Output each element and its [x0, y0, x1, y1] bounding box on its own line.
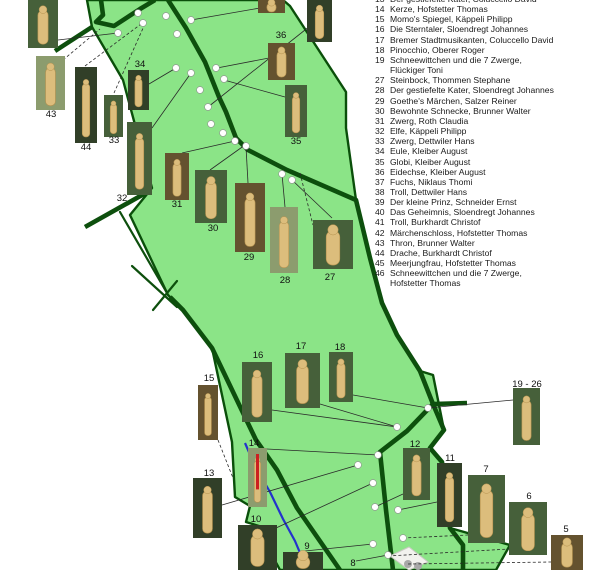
legend-entry-text: Meerjungfrau, Hofstetter Thomas	[390, 258, 554, 268]
legend-entry-number: 37	[375, 177, 390, 187]
photo-28-sculpture	[279, 222, 289, 268]
sculpture-location-dot	[370, 480, 377, 487]
photo-29-sculpture-head	[246, 193, 254, 201]
map-number-label: 33	[109, 135, 120, 146]
legend-entry-number: 17	[375, 35, 390, 45]
photo-33-sculpture	[110, 104, 116, 133]
legend-entry: 34Eule, Kleiber August	[375, 146, 554, 156]
photo-10-sculpture-head	[252, 529, 262, 539]
photo-34-sculpture-head	[136, 75, 141, 80]
legend-entry: 30Bewohnte Schnecke, Brunner Walter	[375, 106, 554, 116]
sculpture-location-dot	[375, 452, 382, 459]
legend-entry: 16Die Sterntaler, Sloendregt Johannes	[375, 24, 554, 34]
sculpture-location-dot	[174, 31, 181, 38]
legend-entry-text: Schneewittchen und die 7 Zwerge,	[390, 268, 554, 278]
sculpture-location-dot	[400, 535, 407, 542]
legend-entry: 39Der kleine Prinz, Schneider Ernst	[375, 197, 554, 207]
legend-entry-text: Bewohnte Schnecke, Brunner Walter	[390, 106, 554, 116]
legend-entry-text: Hofstetter Thomas	[390, 278, 554, 288]
photo-10-sculpture	[251, 535, 264, 567]
sculpture-location-dot	[394, 424, 401, 431]
map-number-label: 34	[135, 59, 146, 70]
map-number-label: 32	[117, 193, 128, 204]
photo-top-left-sculpture-head	[39, 6, 47, 14]
sculpture-location-dot	[197, 87, 204, 94]
photo-32-sculpture-head	[136, 133, 143, 140]
legend-entry: 32Elfe, Käppeli Philipp	[375, 126, 554, 136]
trail-path	[433, 403, 467, 404]
legend-entry-text: Die Sterntaler, Sloendregt Johannes	[390, 24, 554, 34]
map-number-label: 31	[172, 199, 183, 210]
legend-entry-text: Momo's Spiegel, Käppeli Philipp	[390, 14, 554, 24]
legend-entry-number: 44	[375, 248, 390, 258]
photo-35-sculpture-head	[293, 93, 299, 99]
legend-entry-number: 16	[375, 24, 390, 34]
legend-entry: Flückiger Toni	[375, 65, 554, 75]
photo-top-right-sculpture-head	[316, 5, 323, 12]
legend-entry-text: Das Geheimnis, Sloendregt Johannes	[390, 207, 554, 217]
sculpture-location-dot	[289, 177, 296, 184]
photo-29-sculpture	[245, 198, 255, 246]
photo-12-sculpture-head	[413, 455, 420, 462]
legend-entry-text: Der kleine Prinz, Schneider Ernst	[390, 197, 554, 207]
legend-entry-text: Fuchs, Niklaus Thomi	[390, 177, 554, 187]
sculpture-location-dot	[135, 10, 142, 17]
legend-entry: 45Meerjungfrau, Hofstetter Thomas	[375, 258, 554, 268]
legend-entry-text: Elfe, Käppeli Philipp	[390, 126, 554, 136]
photo-32-sculpture	[135, 138, 144, 189]
photo-27-sculpture	[326, 231, 340, 265]
photo-36-sculpture-head	[278, 47, 285, 54]
map-number-label: 18	[335, 342, 346, 353]
photo-17-sculpture	[297, 365, 309, 404]
map-number-label: 30	[208, 223, 219, 234]
map-number-label: 9	[304, 541, 309, 552]
photo-11-sculpture-head	[446, 473, 453, 480]
photo-36-sculpture	[277, 51, 286, 77]
legend-entry-number: 28	[375, 85, 390, 95]
photo-30-sculpture	[206, 182, 217, 219]
sculpture-location-dot	[213, 65, 220, 72]
map-number-label: 15	[204, 373, 215, 384]
sculpture-location-dot	[243, 143, 250, 150]
legend-entry-text: Eidechse, Kleiber August	[390, 167, 554, 177]
legend-entry: 31Zwerg, Roth Claudia	[375, 116, 554, 126]
legend-entry: 42Märchenschloss, Hofstetter Thomas	[375, 228, 554, 238]
legend-entry: 28Der gestiefelte Kater, Sloendregt Joha…	[375, 85, 554, 95]
legend-entry-number: 34	[375, 146, 390, 156]
legend-entry: 18Pinocchio, Oberer Roger	[375, 45, 554, 55]
sculpture-location-dot	[220, 130, 227, 137]
legend-entry: 27Steinbock, Thommen Stephane	[375, 75, 554, 85]
legend-entry-text: Pinocchio, Oberer Roger	[390, 45, 554, 55]
legend-entry-number: 43	[375, 238, 390, 248]
map-number-label: 16	[253, 350, 264, 361]
legend-entry-number: 35	[375, 157, 390, 167]
legend-entry-number: 38	[375, 187, 390, 197]
photo-13-sculpture-head	[204, 486, 212, 494]
photo-6-sculpture-head	[523, 508, 533, 518]
sculpture-location-dot	[205, 104, 212, 111]
sculpture-location-dot	[140, 20, 147, 27]
sculpture-location-dot	[208, 121, 215, 128]
photo-14-red-stripe	[256, 454, 259, 489]
legend-entry: 36Eidechse, Kleiber August	[375, 167, 554, 177]
sculpture-location-dot	[221, 76, 228, 83]
photo-15-sculpture	[205, 397, 212, 436]
legend-entry-text: Märchenschloss, Hofstetter Thomas	[390, 228, 554, 238]
sculpture-location-dot	[115, 30, 122, 37]
legend-entry-text: Kerze, Hofstetter Thomas	[390, 4, 554, 14]
photo-19-26-sculpture-head	[523, 396, 530, 403]
sculpture-location-dot	[163, 13, 170, 20]
photo-43-sculpture-head	[47, 63, 55, 71]
legend-entry-number: 30	[375, 106, 390, 116]
legend-entry-number	[375, 278, 390, 288]
legend-entry-number: 39	[375, 197, 390, 207]
photo-19-26-sculpture	[522, 401, 531, 441]
legend-entry-number: 27	[375, 75, 390, 85]
legend-entry-number: 42	[375, 228, 390, 238]
legend-entry-text: Zwerg, Roth Claudia	[390, 116, 554, 126]
sculpture-location-dot	[188, 70, 195, 77]
legend-entry-number: 15	[375, 14, 390, 24]
photo-18-sculpture	[337, 363, 345, 398]
legend-entry-number: 18	[375, 45, 390, 55]
map-number-label: 35	[291, 136, 302, 147]
sculpture-location-dot	[425, 405, 432, 412]
photo-27-sculpture-head	[328, 225, 338, 235]
map-number-label: 13	[204, 468, 215, 479]
map-number-label: 14	[249, 438, 260, 449]
photo-30-sculpture-head	[207, 176, 215, 184]
photo-5-sculpture-head	[563, 538, 571, 546]
photo-33-sculpture-head	[111, 101, 116, 106]
photo-15-sculpture-head	[205, 393, 210, 398]
sculpture-location-dot	[372, 504, 379, 511]
legend-entry-text: Flückiger Toni	[390, 65, 554, 75]
photo-44-sculpture	[82, 84, 89, 137]
map-number-label: 11	[445, 453, 455, 464]
legend-entry-text: Bremer Stadtmusikanten, Coluccello David	[390, 35, 554, 45]
legend-entry-text: Goethe's Märchen, Salzer Reiner	[390, 96, 554, 106]
legend-entry-text: Schneewittchen und die 7 Zwerge,	[390, 55, 554, 65]
legend-entry: 46Schneewittchen und die 7 Zwerge,	[375, 268, 554, 278]
photo-top-left-sculpture	[38, 11, 48, 45]
legend-entry: 19Schneewittchen und die 7 Zwerge,	[375, 55, 554, 65]
photo-11-sculpture	[445, 477, 454, 522]
map-number-label: 44	[81, 142, 92, 153]
legend-entry-text: Troll, Dettwiler Hans	[390, 187, 554, 197]
map-number-label: 19 - 26	[512, 379, 542, 390]
legend-entry-number: 31	[375, 116, 390, 126]
legend-entry-number: 14	[375, 4, 390, 14]
legend-entry-text: Eule, Kleiber August	[390, 146, 554, 156]
legend-entry: Hofstetter Thomas	[375, 278, 554, 288]
legend-entry: 38Troll, Dettwiler Hans	[375, 187, 554, 197]
sculpture-location-dot	[279, 171, 286, 178]
photo-top-mid-sculpture-head	[268, 0, 275, 6]
map-number-label: 17	[296, 341, 307, 352]
legend-entry-number: 32	[375, 126, 390, 136]
legend-entry-number: 40	[375, 207, 390, 217]
map-number-label: 8	[350, 558, 355, 569]
connector-line	[218, 440, 233, 478]
photo-7-sculpture-head	[482, 484, 492, 494]
legend-entry: 29Goethe's Märchen, Salzer Reiner	[375, 96, 554, 106]
photo-13-sculpture	[203, 491, 213, 533]
photo-16-sculpture	[252, 375, 262, 417]
photo-18-sculpture-head	[338, 359, 344, 365]
sculpture-location-dot	[188, 17, 195, 24]
map-number-label: 36	[276, 30, 287, 41]
photo-31-sculpture	[173, 163, 181, 196]
photo-43-sculpture	[46, 68, 56, 106]
legend-entry-text: Globi, Kleiber August	[390, 157, 554, 167]
legend-entry: 37Fuchs, Niklaus Thomi	[375, 177, 554, 187]
photo-7-sculpture	[480, 490, 493, 538]
legend-entry-text: Steinbock, Thommen Stephane	[390, 75, 554, 85]
legend-entry: 33Zwerg, Dettwiler Hans	[375, 136, 554, 146]
map-number-label: 28	[280, 275, 291, 286]
photo-6-sculpture	[522, 514, 535, 551]
legend-entry-text: Drache, Burkhardt Christof	[390, 248, 554, 258]
map-number-label: 12	[410, 439, 421, 450]
legend-entry-text: Zwerg, Dettwiler Hans	[390, 136, 554, 146]
legend-entry-text: Thron, Brunner Walter	[390, 238, 554, 248]
photo-top-right-sculpture	[315, 9, 324, 38]
map-number-label: 5	[563, 524, 568, 535]
legend-entry-number: 33	[375, 136, 390, 146]
sculpture-location-dot	[370, 541, 377, 548]
legend-entry: 15Momo's Spiegel, Käppeli Philipp	[375, 14, 554, 24]
trail-path	[55, 27, 92, 51]
sculpture-location-dot	[385, 552, 392, 559]
photo-28-sculpture-head	[280, 217, 287, 224]
legend-entry: 43Thron, Brunner Walter	[375, 238, 554, 248]
photo-35-sculpture	[292, 96, 299, 132]
photo-34-sculpture	[135, 79, 142, 107]
legend-entry: 35Globi, Kleiber August	[375, 157, 554, 167]
legend-entry-number: 36	[375, 167, 390, 177]
photo-44-sculpture-head	[83, 79, 89, 85]
legend-entry-text: Der gestiefelte Kater, Sloendregt Johann…	[390, 85, 554, 95]
gray-dot	[414, 562, 422, 570]
legend-entry: 41Troll, Burkhardt Christof	[375, 217, 554, 227]
legend-entry-number: 46	[375, 268, 390, 278]
legend-entry-number: 19	[375, 55, 390, 65]
legend-entry-number	[375, 65, 390, 75]
legend-entry: 44Drache, Burkhardt Christof	[375, 248, 554, 258]
legend-entry-text: Troll, Burkhardt Christof	[390, 217, 554, 227]
photo-17-sculpture-head	[298, 359, 307, 368]
map-number-label: 29	[244, 252, 255, 263]
legend-entry: 14Kerze, Hofstetter Thomas	[375, 4, 554, 14]
map-number-label: 27	[325, 272, 336, 283]
photo-31-sculpture-head	[174, 159, 180, 165]
sculpture-location-dot	[173, 65, 180, 72]
photo-12-sculpture	[412, 459, 421, 495]
sculpture-trail-map-page: 4344333432313029282736351516171814131012…	[0, 0, 600, 570]
sculpture-location-dot	[232, 138, 239, 145]
map-number-label: 43	[46, 109, 57, 120]
legend-entry: 17Bremer Stadtmusikanten, Coluccello Dav…	[375, 35, 554, 45]
legend-entry-number: 45	[375, 258, 390, 268]
sculpture-location-dot	[395, 507, 402, 514]
map-number-label: 7	[483, 464, 488, 475]
legend-entry-number: 41	[375, 217, 390, 227]
map-number-label: 10	[251, 514, 262, 525]
legend-entry: 40Das Geheimnis, Sloendregt Johannes	[375, 207, 554, 217]
sculpture-location-dot	[355, 462, 362, 469]
map-number-label: 6	[526, 491, 531, 502]
photo-16-sculpture-head	[253, 370, 261, 378]
legend: 13Der gestiefelte Kater, Coluccello Davi…	[375, 0, 554, 289]
legend-entry-number: 29	[375, 96, 390, 106]
